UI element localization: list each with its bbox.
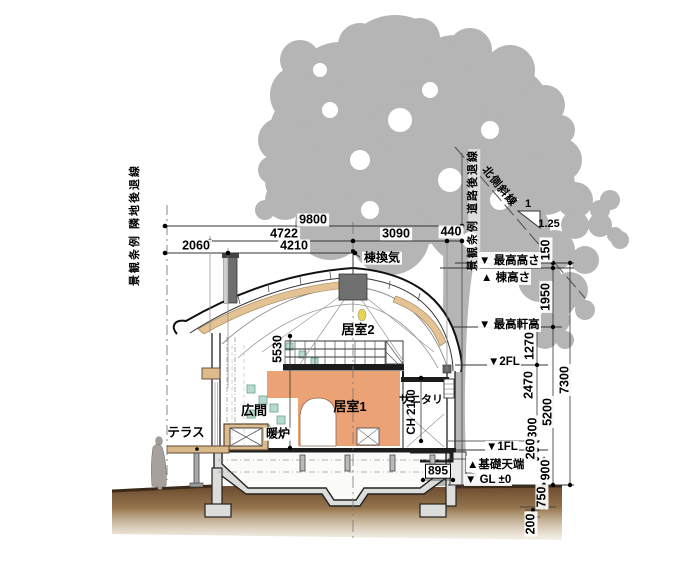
dim-7300: 7300 bbox=[558, 364, 571, 396]
dim-260: 260 bbox=[524, 437, 537, 462]
level-max-eave: ▼ 最高軒高 bbox=[478, 316, 541, 332]
dim-3090: 3090 bbox=[380, 227, 412, 240]
room-living: 居室1 bbox=[333, 400, 366, 414]
dim-150: 150 bbox=[539, 238, 552, 263]
dim-5200: 5200 bbox=[541, 396, 554, 428]
level-foundation-top: ▲基礎天端 bbox=[466, 456, 525, 472]
dim-2060: 2060 bbox=[180, 239, 212, 252]
section-drawing-canvas bbox=[0, 0, 700, 565]
dim-1270: 1270 bbox=[523, 330, 536, 362]
room-loft: 居室2 bbox=[341, 323, 374, 337]
room-terrace: テラス bbox=[167, 426, 204, 439]
room-sanitary: サニタリ bbox=[399, 395, 443, 407]
room-hall: 広間 bbox=[241, 404, 267, 418]
dim-750: 750 bbox=[535, 485, 548, 510]
section-drawing: 9800 4722 3090 440 2060 4210 150 1950 12… bbox=[0, 0, 700, 565]
dim-1950: 1950 bbox=[539, 281, 552, 313]
dim-895: 895 bbox=[425, 464, 451, 479]
left-setback-label: 景観条例 隣地後退線 bbox=[130, 164, 142, 286]
dim-900: 900 bbox=[539, 458, 552, 483]
slope-rise: 1 bbox=[525, 199, 531, 211]
dim-200: 200 bbox=[524, 512, 537, 537]
dim-2470: 2470 bbox=[522, 369, 535, 401]
level-gl: ▼ GL ±0 bbox=[464, 474, 512, 486]
dim-440: 440 bbox=[439, 225, 464, 238]
slope-run: 1.25 bbox=[538, 219, 559, 231]
dim-5530: 5530 bbox=[271, 335, 284, 363]
level-1fl: ▼1FL bbox=[485, 441, 519, 453]
chimney bbox=[222, 253, 239, 303]
level-ridge-height: ▲ 棟高さ bbox=[480, 269, 531, 285]
level-max-height: ▼ 最高高さ bbox=[478, 252, 541, 268]
room-fireplace: 暖炉 bbox=[264, 428, 292, 441]
dim-4210: 4210 bbox=[278, 239, 310, 252]
person-silhouette bbox=[151, 436, 166, 489]
ornament bbox=[358, 309, 366, 321]
level-2fl: ▼2FL bbox=[487, 356, 521, 368]
ridge-vent-label: 棟換気 bbox=[362, 252, 402, 265]
dim-9800: 9800 bbox=[297, 213, 329, 226]
right-setback-label: 景観条例 道路後退線 bbox=[468, 149, 480, 271]
